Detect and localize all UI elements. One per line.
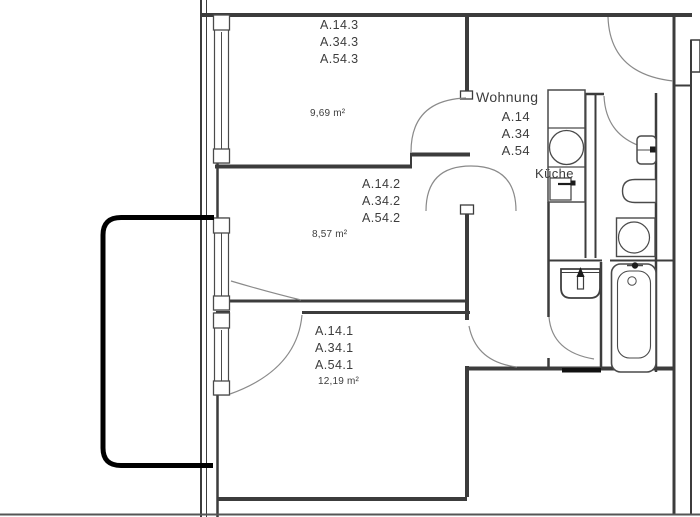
window-balcony-door — [214, 218, 230, 310]
hand-basin — [637, 136, 656, 164]
room-1-label-2: A.34.1 — [315, 340, 354, 357]
door-washroom — [549, 317, 594, 359]
room-1-label-3: A.54.1 — [315, 357, 354, 374]
room-1-label-1: A.14.1 — [315, 323, 354, 340]
washbasin-tap — [578, 276, 584, 289]
apartment-title: Wohnung — [476, 89, 538, 105]
door-room-1 — [230, 315, 302, 394]
threshold — [562, 368, 601, 373]
windows — [214, 15, 230, 395]
room-2-area: 8,57 m² — [312, 229, 347, 240]
room-1-area: 12,19 m² — [318, 376, 359, 387]
room-2-label-1: A.14.2 — [362, 176, 401, 193]
floor-plan-drawing — [0, 0, 700, 517]
kitchen-sink — [550, 131, 584, 165]
balcony-anchor-top — [196, 215, 214, 220]
shaft-top-right — [691, 40, 700, 72]
room-3-label-3: A.54.3 — [320, 51, 359, 68]
washroom-fixtures — [561, 267, 601, 373]
apartment-unit-1: A.14 — [494, 108, 530, 125]
door-hall — [469, 326, 517, 367]
door-room-3 — [411, 98, 466, 152]
bathroom-fixtures — [612, 136, 657, 372]
door-room-2 — [426, 166, 516, 211]
floor-plan: A.14.3 A.34.3 A.54.3 9,69 m² A.14.2 A.34… — [0, 0, 700, 517]
window-room-1 — [214, 313, 230, 395]
washing-machine — [617, 218, 656, 257]
door-entry — [608, 17, 673, 81]
room-2-label-2: A.34.2 — [362, 193, 401, 210]
room-2-label-3: A.54.2 — [362, 210, 401, 227]
bathtub-drain — [628, 277, 636, 285]
balcony-anchor-bottom — [195, 463, 213, 468]
room-3-label-1: A.14.3 — [320, 17, 359, 34]
door-room-1-upper — [231, 281, 301, 300]
balcony — [103, 215, 214, 468]
balcony-outline — [103, 218, 213, 466]
kitchen-fixtures — [548, 90, 585, 202]
apartment-unit-3: A.54 — [494, 142, 530, 159]
door-arcs — [230, 17, 673, 394]
toilet — [623, 180, 657, 203]
room-3-label-2: A.34.3 — [320, 34, 359, 51]
kitchen-label: Küche — [535, 166, 574, 181]
bathtub — [612, 262, 657, 372]
apartment-unit-2: A.34 — [494, 125, 530, 142]
room-3-area: 9,69 m² — [310, 108, 345, 119]
kitchen-counter — [548, 90, 585, 202]
window-room-3 — [214, 15, 230, 163]
stove — [550, 178, 576, 200]
